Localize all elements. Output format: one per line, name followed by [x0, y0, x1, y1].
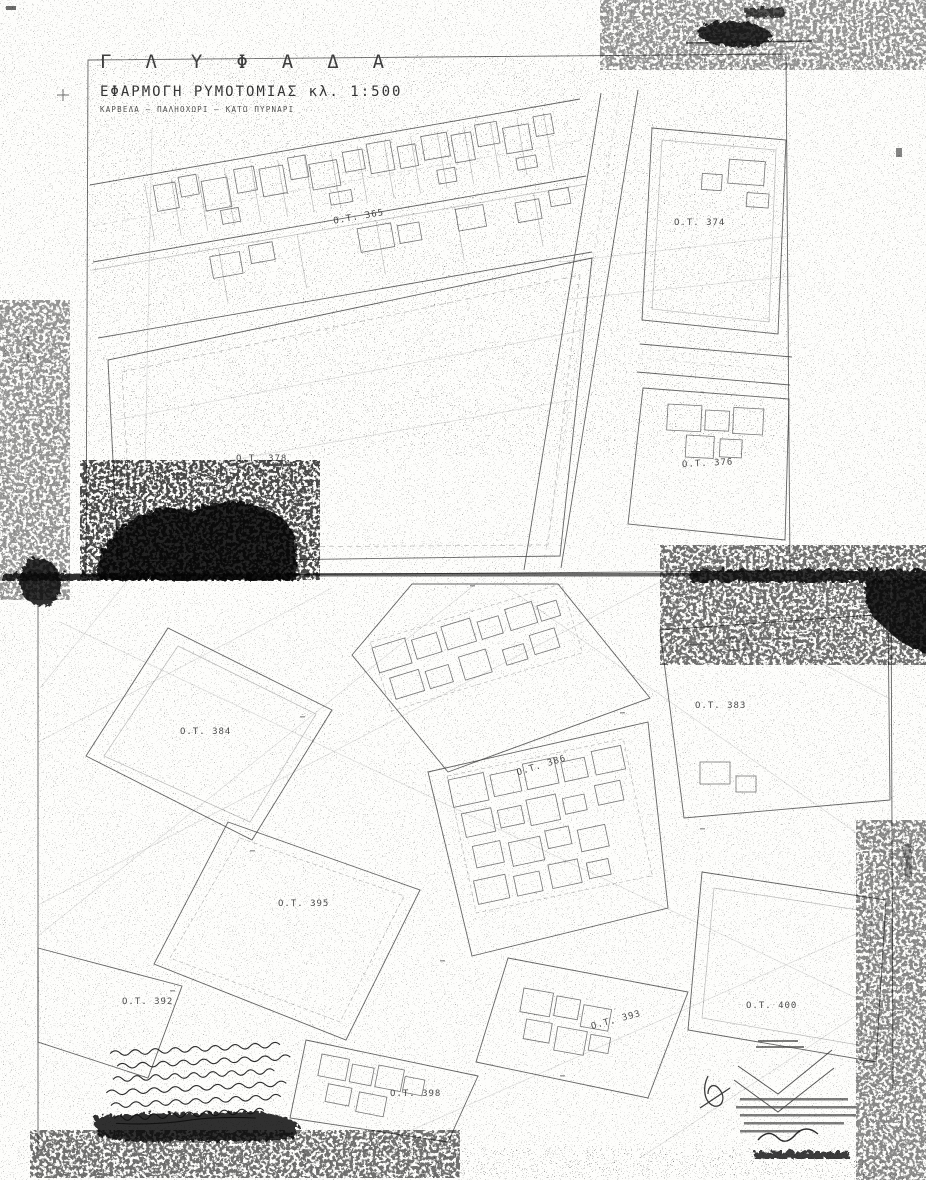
note-smudge — [92, 1109, 298, 1140]
block-ot-376: Ο.Τ. 376 — [628, 388, 789, 540]
block-label-ot-383: Ο.Τ. 383 — [695, 701, 746, 711]
ink-blotch-left-large — [93, 500, 295, 578]
block-label-ot-384: Ο.Τ. 384 — [180, 727, 231, 737]
block-ot-395: Ο.Τ. 395 — [154, 822, 420, 1040]
block-label-ot-393: Ο.Τ. 393 — [590, 1009, 642, 1032]
dimension-ticks — [170, 585, 705, 1077]
block-ot-384: Ο.Τ. 384 — [86, 628, 332, 840]
bottom-sheet: Ο.Τ. 384 Ο.Τ. 383 — [38, 578, 893, 1160]
top-sheet: Ο.Τ. 365 Ο.Τ. 378 — [86, 54, 792, 576]
block-label-ot-395: Ο.Τ. 395 — [278, 899, 329, 909]
approval-stamp-signature — [700, 1040, 856, 1157]
block-label-ot-392: Ο.Τ. 392 — [122, 997, 173, 1007]
block-ot-393: Ο.Τ. 393 — [476, 958, 688, 1098]
block-label-ot-378: Ο.Τ. 378 — [236, 454, 287, 464]
block-ot-374: Ο.Τ. 374 — [642, 128, 786, 334]
block-label-ot-386: Ο.Τ. 386 — [516, 754, 568, 779]
block-ot-392: Ο.Τ. 392 — [38, 948, 182, 1078]
map-title: ΓΛΥΦΑΔΑ — [100, 51, 418, 73]
block-label-ot-376: Ο.Τ. 376 — [682, 457, 734, 470]
map-area-line: ΚΑΡΒΕΛΑ – ΠΑΛΗΟΧΩΡΙ – ΚΑΤΩ ΠΥΡΝΑΡΙ — [100, 105, 294, 114]
map-header: ΓΛΥΦΑΔΑ ΕΦΑΡΜΟΓΗ ΡΥΜΟΤΟΜΙΑΣ κλ. 1:500 ΚΑ… — [100, 51, 418, 114]
map-subtitle: ΕΦΑΡΜΟΓΗ ΡΥΜΟΤΟΜΙΑΣ κλ. 1:500 — [100, 84, 402, 100]
block-cluster-mid-top — [352, 584, 650, 772]
block-label-ot-374: Ο.Τ. 374 — [674, 218, 725, 228]
block-ot-383: Ο.Τ. 383 — [660, 614, 890, 818]
survey-cross-mark — [28, 89, 69, 362]
signature-flourish — [700, 1076, 730, 1108]
scanned-plan-page: ΓΛΥΦΑΔΑ ΕΦΑΡΜΟΓΗ ΡΥΜΟΤΟΜΙΑΣ κλ. 1:500 ΚΑ… — [0, 0, 926, 1180]
scanned-map: ΓΛΥΦΑΔΑ ΕΦΑΡΜΟΓΗ ΡΥΜΟΤΟΜΙΑΣ κλ. 1:500 ΚΑ… — [0, 0, 926, 1180]
block-ot-400: Ο.Τ. 400 — [688, 872, 886, 1062]
block-ot-386: Ο.Τ. 386 — [428, 722, 668, 956]
top-sheet-border — [86, 54, 790, 576]
block-ot-398: Ο.Τ. 398 — [290, 1040, 478, 1142]
ink-blotches — [6, 6, 910, 876]
sheet-seam — [0, 500, 926, 652]
block-label-ot-400: Ο.Τ. 400 — [746, 1001, 797, 1011]
block-label-ot-398: Ο.Τ. 398 — [390, 1089, 441, 1099]
